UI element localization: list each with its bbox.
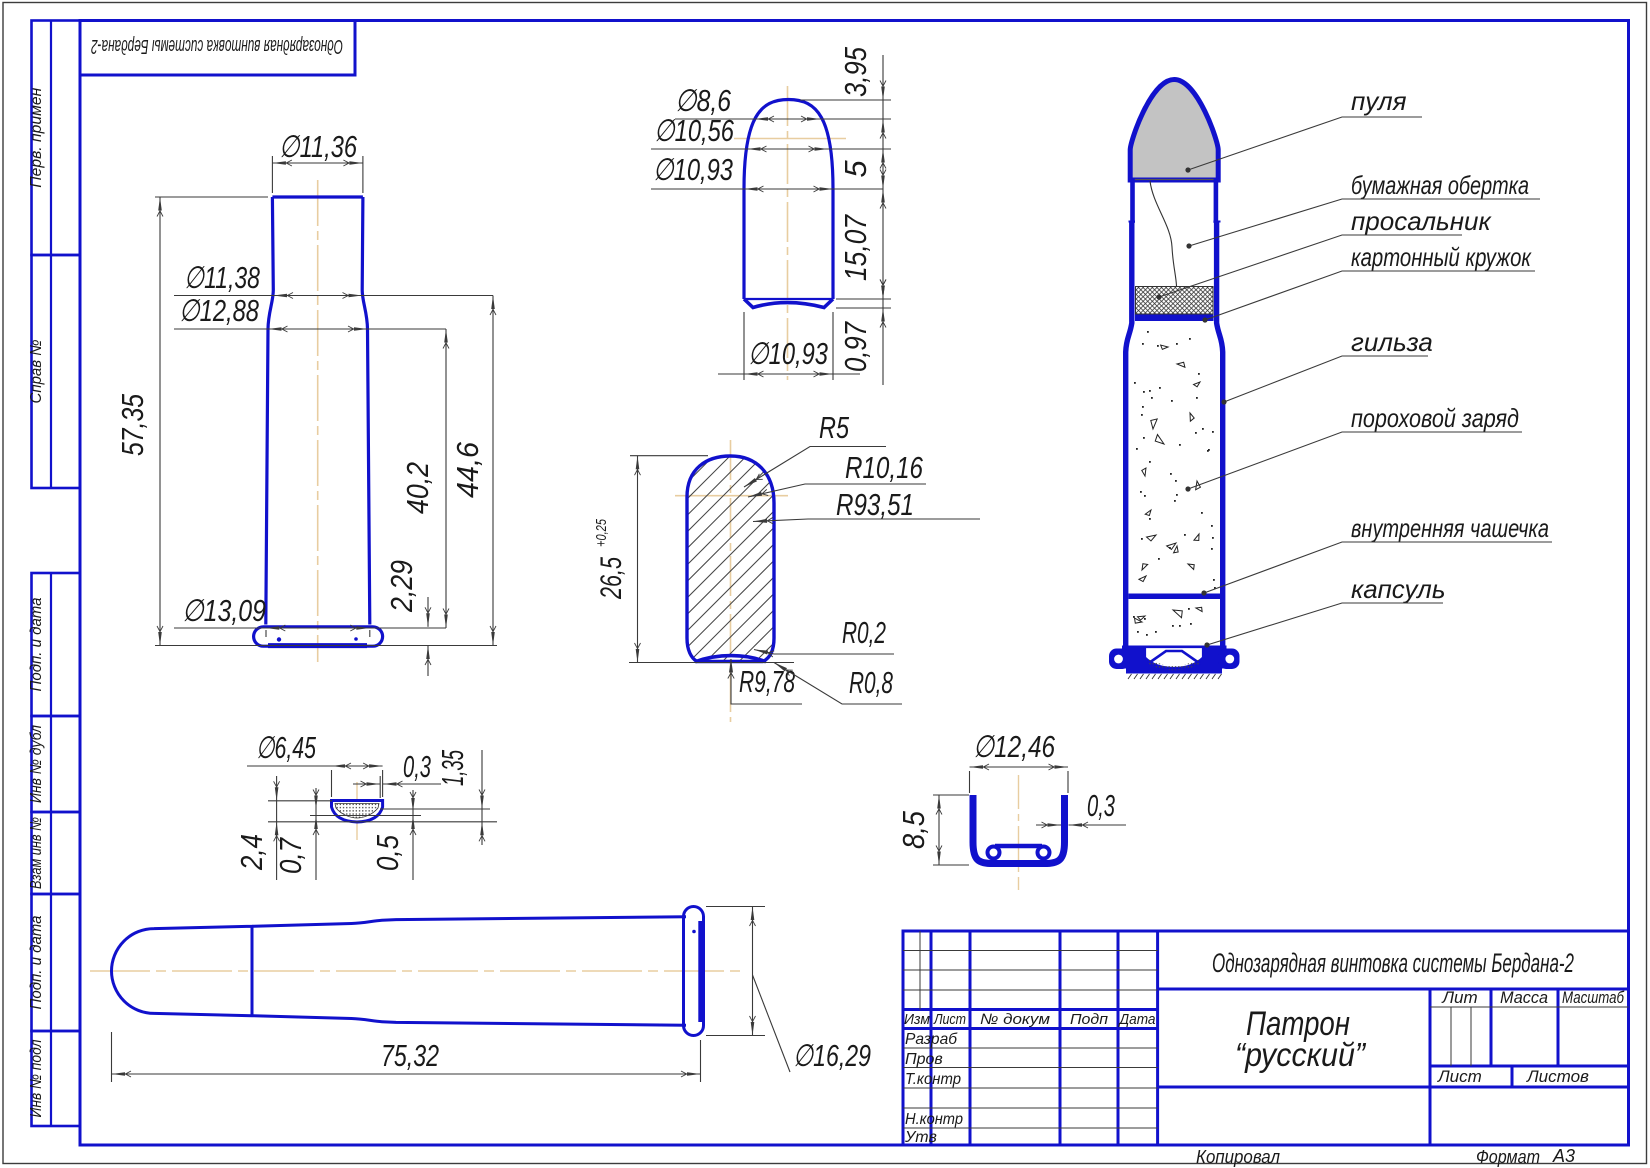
svg-text:∅12,88: ∅12,88 xyxy=(179,293,260,328)
svg-text:Лист: Лист xyxy=(1437,1067,1482,1086)
svg-text:44,6: 44,6 xyxy=(450,441,485,498)
svg-text:∅11,36: ∅11,36 xyxy=(279,129,358,164)
svg-text:Изм: Изм xyxy=(904,1011,930,1028)
svg-text:0,97: 0,97 xyxy=(838,321,873,372)
svg-text:R0,2: R0,2 xyxy=(842,615,886,650)
svg-text:57,35: 57,35 xyxy=(115,393,150,456)
svg-text:№ докум: № докум xyxy=(980,1011,1050,1028)
svg-text:Дата: Дата xyxy=(1118,1011,1156,1028)
svg-text:бумажная обертка: бумажная обертка xyxy=(1351,170,1529,200)
svg-text:Однозарядная винтовка системы: Однозарядная винтовка системы Бердана-2 xyxy=(91,35,343,57)
svg-text:R5: R5 xyxy=(819,410,850,445)
svg-text:Н.контр: Н.контр xyxy=(905,1111,963,1128)
svg-text:0,5: 0,5 xyxy=(370,834,405,871)
svg-text:капсуль: капсуль xyxy=(1351,574,1446,604)
svg-text:Подп: Подп xyxy=(1070,1011,1108,1028)
svg-text:2,4: 2,4 xyxy=(234,834,269,871)
svg-text:просальник: просальник xyxy=(1351,206,1492,236)
svg-text:Копировал: Копировал xyxy=(1196,1147,1280,1167)
svg-text:Подп. и дата: Подп. и дата xyxy=(28,915,45,1009)
svg-text:Инв № дубл: Инв № дубл xyxy=(28,725,45,803)
svg-text:пороховой заряд: пороховой заряд xyxy=(1351,403,1519,433)
svg-text:Подп. и дата: Подп. и дата xyxy=(28,597,45,691)
svg-text:0,7: 0,7 xyxy=(273,837,308,874)
svg-text:R93,51: R93,51 xyxy=(836,487,914,522)
svg-text:∅12,46: ∅12,46 xyxy=(973,729,1056,764)
svg-text:Однозарядная винтовка системы: Однозарядная винтовка системы Бердана-2 xyxy=(1212,948,1574,978)
svg-text:15,07: 15,07 xyxy=(838,214,873,281)
svg-text:0,3: 0,3 xyxy=(403,749,431,784)
svg-text:8,5: 8,5 xyxy=(896,810,931,849)
svg-text:Справ №: Справ № xyxy=(28,340,45,404)
svg-text:Масса: Масса xyxy=(1500,988,1548,1007)
svg-text:∅16,29: ∅16,29 xyxy=(793,1038,871,1073)
svg-text:+0,25: +0,25 xyxy=(593,519,610,547)
svg-text:∅13,09: ∅13,09 xyxy=(182,593,266,628)
svg-text:Утв: Утв xyxy=(904,1129,937,1146)
svg-text:40,2: 40,2 xyxy=(400,462,435,514)
svg-text:2,29: 2,29 xyxy=(384,560,419,613)
svg-text:А3: А3 xyxy=(1552,1146,1575,1166)
svg-text:∅10,93: ∅10,93 xyxy=(653,152,733,187)
svg-text:Перв. примен: Перв. примен xyxy=(28,88,45,188)
svg-text:R0,8: R0,8 xyxy=(849,665,894,700)
svg-text:внутренняя чашечка: внутренняя чашечка xyxy=(1351,513,1549,543)
svg-text:3,95: 3,95 xyxy=(838,46,873,97)
svg-text:Масштаб: Масштаб xyxy=(1562,988,1625,1007)
svg-text:∅6,45: ∅6,45 xyxy=(256,730,317,765)
svg-text:Т.контр: Т.контр xyxy=(905,1071,961,1088)
svg-text:гильза: гильза xyxy=(1351,327,1433,357)
svg-text:пуля: пуля xyxy=(1351,86,1407,116)
svg-text:5: 5 xyxy=(838,160,873,178)
svg-text:“русский”: “русский” xyxy=(1235,1036,1367,1073)
svg-text:R9,78: R9,78 xyxy=(739,664,796,699)
svg-text:картонный кружок: картонный кружок xyxy=(1351,242,1532,272)
svg-text:R10,16: R10,16 xyxy=(845,450,924,485)
svg-text:Разраб: Разраб xyxy=(905,1031,958,1048)
svg-text:1,35: 1,35 xyxy=(435,750,470,786)
svg-text:26,5: 26,5 xyxy=(595,557,628,600)
svg-text:Листов: Листов xyxy=(1526,1067,1589,1086)
svg-text:Пров: Пров xyxy=(905,1051,943,1068)
svg-text:Лист: Лист xyxy=(933,1011,966,1028)
svg-text:Формат: Формат xyxy=(1476,1147,1540,1167)
svg-text:∅10,93: ∅10,93 xyxy=(748,336,828,371)
svg-text:∅10,56: ∅10,56 xyxy=(654,113,735,148)
svg-text:0,3: 0,3 xyxy=(1087,788,1115,823)
svg-text:∅11,38: ∅11,38 xyxy=(184,260,261,295)
svg-text:75,32: 75,32 xyxy=(381,1038,439,1073)
svg-text:Инв № подл: Инв № подл xyxy=(28,1040,45,1118)
svg-text:Лит: Лит xyxy=(1441,988,1477,1007)
svg-text:Взам инв №: Взам инв № xyxy=(28,817,45,889)
